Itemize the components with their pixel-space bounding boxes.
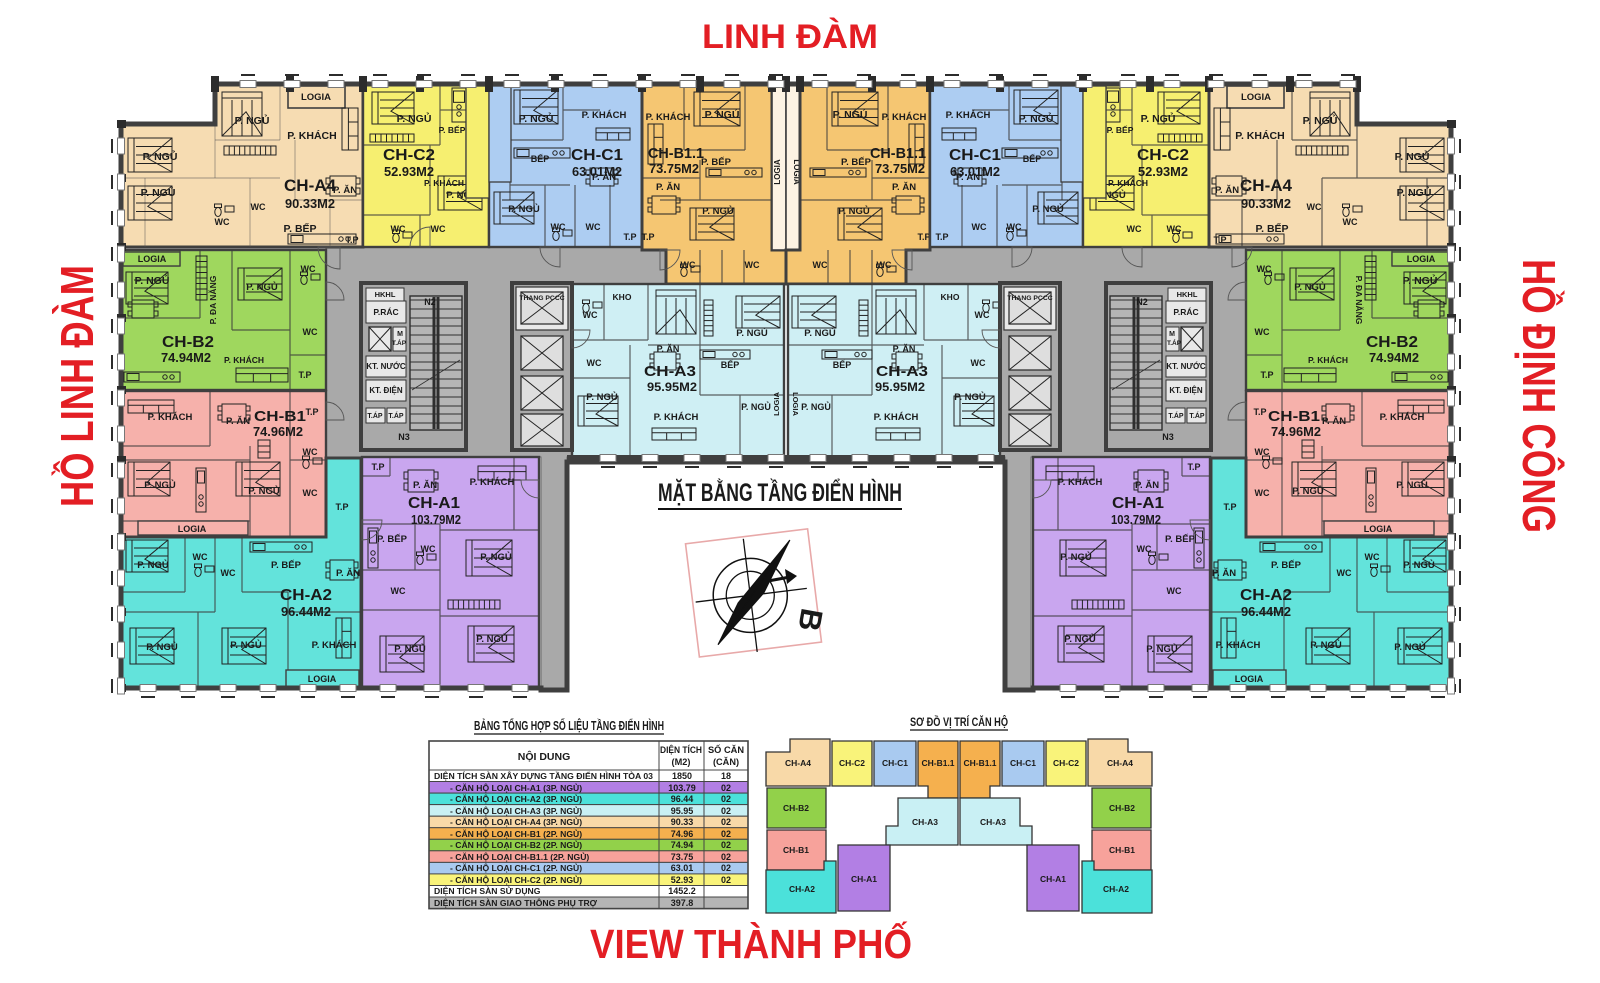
svg-text:P. KHÁCH: P. KHÁCH	[1108, 178, 1148, 188]
svg-text:CH-A1: CH-A1	[1040, 874, 1066, 884]
svg-text:CH-A1: CH-A1	[851, 874, 877, 884]
svg-text:T.P: T.P	[641, 232, 654, 242]
svg-text:74.94M2: 74.94M2	[161, 351, 211, 365]
svg-text:KHO: KHO	[941, 292, 960, 302]
svg-text:P. KHÁCH: P. KHÁCH	[1216, 640, 1261, 651]
svg-text:CH-A2: CH-A2	[789, 884, 815, 894]
svg-text:CH-A4: CH-A4	[785, 758, 811, 768]
svg-text:WC: WC	[1127, 224, 1142, 234]
svg-text:LOGIA: LOGIA	[301, 92, 331, 103]
svg-text:P. NGỦ: P. NGỦ	[1403, 559, 1435, 571]
svg-text:T.P: T.P	[371, 462, 384, 472]
svg-text:P. NGỦ: P. NGỦ	[1397, 186, 1432, 199]
svg-text:CH-C1: CH-C1	[571, 147, 623, 164]
svg-text:WC: WC	[1343, 217, 1358, 227]
svg-text:CH-A1: CH-A1	[408, 495, 460, 512]
svg-text:HKHL: HKHL	[375, 290, 396, 299]
svg-text:52.93M2: 52.93M2	[1138, 165, 1188, 179]
svg-text:WC: WC	[972, 222, 987, 232]
svg-text:CH-A4: CH-A4	[1240, 176, 1293, 195]
svg-text:WC: WC	[193, 552, 208, 562]
svg-text:T.ÁP: T.ÁP	[1168, 411, 1184, 420]
svg-text:52.93: 52.93	[671, 875, 694, 885]
svg-text:P. KHÁCH: P. KHÁCH	[1380, 412, 1425, 423]
svg-text:P. ĐA NĂNG: P. ĐA NĂNG	[1354, 276, 1364, 325]
svg-text:VIEW THÀNH PHỐ: VIEW THÀNH PHỐ	[590, 921, 912, 967]
svg-text:P. NGỦ: P. NGỦ	[480, 551, 512, 563]
svg-text:95.95: 95.95	[671, 806, 694, 816]
svg-text:WC: WC	[1167, 586, 1182, 596]
svg-text:P. ĂN: P. ĂN	[1212, 568, 1236, 579]
svg-text:CH-A4: CH-A4	[1107, 758, 1133, 768]
svg-text:KT. NƯỚC: KT. NƯỚC	[1166, 362, 1205, 371]
svg-text:P. BẾP: P. BẾP	[841, 157, 872, 168]
svg-text:CH-B2: CH-B2	[162, 334, 214, 351]
svg-text:T.ÁP: T.ÁP	[1189, 411, 1205, 420]
svg-text:103.79M2: 103.79M2	[411, 513, 461, 527]
svg-text:P. KHÁCH: P. KHÁCH	[224, 355, 264, 365]
svg-text:WC: WC	[1365, 552, 1380, 562]
svg-text:T.P: T.P	[335, 502, 348, 512]
svg-text:THANG PCCC: THANG PCCC	[1007, 295, 1052, 302]
svg-text:90.33: 90.33	[671, 817, 694, 827]
svg-text:74.96M2: 74.96M2	[1271, 425, 1321, 439]
svg-text:CH-C1: CH-C1	[882, 758, 908, 768]
svg-text:1452.2: 1452.2	[668, 886, 696, 896]
svg-text:LOGIA: LOGIA	[1235, 674, 1264, 684]
svg-text:74.94M2: 74.94M2	[1369, 351, 1419, 365]
svg-text:P. BẾP: P. BẾP	[283, 222, 316, 235]
svg-text:T.P: T.P	[1187, 462, 1200, 472]
svg-text:LOGIA: LOGIA	[138, 254, 167, 264]
svg-text:WC: WC	[1255, 488, 1270, 498]
svg-text:P. NGỦ: P. NGỦ	[741, 401, 771, 412]
svg-text:CH-B1: CH-B1	[254, 408, 306, 425]
svg-text:- CĂN HỘ LOẠI CH-A2 (3P. NGỦ): - CĂN HỘ LOẠI CH-A2 (3P. NGỦ)	[450, 793, 582, 804]
svg-text:P. KHÁCH: P. KHÁCH	[312, 640, 357, 651]
svg-text:DIỆN TÍCH SÀN SỬ DỤNG: DIỆN TÍCH SÀN SỬ DỤNG	[434, 885, 541, 896]
svg-text:P.RÁC: P.RÁC	[373, 307, 398, 317]
svg-text:KT. ĐIỆN: KT. ĐIỆN	[1169, 386, 1203, 395]
svg-text:P. NGỦ: P. NGỦ	[246, 281, 278, 293]
svg-text:NỘI DUNG: NỘI DUNG	[518, 750, 571, 763]
svg-text:CH-C1: CH-C1	[1010, 758, 1036, 768]
svg-text:N3: N3	[1162, 432, 1174, 442]
svg-text:T.P: T.P	[917, 232, 930, 242]
svg-text:CH-B1: CH-B1	[1109, 845, 1135, 855]
svg-text:- CĂN HỘ LOẠI CH-B2 (2P. NGỦ): - CĂN HỘ LOẠI CH-B2 (2P. NGỦ)	[450, 839, 582, 850]
svg-text:WC: WC	[877, 260, 892, 270]
svg-text:P. KHÁCH: P. KHÁCH	[582, 110, 627, 121]
svg-text:WC: WC	[586, 222, 601, 232]
svg-text:P. KHÁCH: P. KHÁCH	[1308, 355, 1348, 365]
svg-text:WC: WC	[251, 202, 266, 212]
svg-text:02: 02	[721, 783, 731, 793]
svg-text:P. NGỦ: P. NGỦ	[954, 391, 986, 403]
svg-text:P. BẾP: P. BẾP	[1107, 125, 1134, 135]
svg-text:LINH ĐÀM: LINH ĐÀM	[702, 18, 878, 56]
svg-text:M: M	[397, 331, 403, 338]
svg-text:P. NGỦ: P. NGỦ	[736, 327, 768, 339]
svg-text:KHO: KHO	[613, 292, 632, 302]
svg-text:P. ĂN: P. ĂN	[656, 182, 680, 193]
svg-text:P. NGỦ: P. NGỦ	[705, 108, 740, 121]
svg-text:KT. NƯỚC: KT. NƯỚC	[366, 362, 405, 371]
svg-text:CH-C2: CH-C2	[1137, 147, 1189, 164]
svg-text:95.95M2: 95.95M2	[647, 380, 697, 394]
svg-text:P. KHÁCH: P. KHÁCH	[654, 412, 699, 423]
svg-text:LOGIA: LOGIA	[1407, 254, 1436, 264]
svg-text:P.RÁC: P.RÁC	[1173, 307, 1198, 317]
svg-text:CH-C2: CH-C2	[1053, 758, 1079, 768]
svg-text:T.P: T.P	[1260, 370, 1273, 380]
svg-text:P. ĂN: P. ĂN	[1215, 185, 1239, 196]
svg-text:HỒ ĐỊNH CÔNG: HỒ ĐỊNH CÔNG	[1513, 259, 1565, 533]
svg-text:P. NGỦ: P. NGỦ	[702, 205, 734, 217]
svg-text:CH-B1.1: CH-B1.1	[648, 145, 704, 162]
svg-text:LOGIA: LOGIA	[773, 159, 782, 185]
svg-text:103.79M2: 103.79M2	[1111, 513, 1161, 527]
svg-text:1850: 1850	[672, 771, 692, 781]
svg-text:WC: WC	[431, 224, 446, 234]
svg-text:DIỆN TÍCH SÀN GIAO THÔNG PHỤ T: DIỆN TÍCH SÀN GIAO THÔNG PHỤ TRỢ	[434, 897, 598, 908]
svg-text:(M2): (M2)	[672, 757, 691, 767]
svg-text:P. BẾP: P. BẾP	[1271, 560, 1302, 571]
svg-text:CH-B2: CH-B2	[1109, 803, 1135, 813]
svg-text:CH-B1: CH-B1	[1268, 408, 1320, 425]
svg-text:CH-C2: CH-C2	[383, 147, 435, 164]
svg-text:- CĂN HỘ LOẠI CH-A4 (3P. NGỦ): - CĂN HỘ LOẠI CH-A4 (3P. NGỦ)	[450, 816, 582, 827]
svg-text:CH-B1.1: CH-B1.1	[870, 145, 926, 162]
svg-text:P. NGỦ: P. NGỦ	[838, 205, 870, 217]
svg-text:02: 02	[721, 840, 731, 850]
svg-text:BẢNG TỔNG HỢP SỐ LIỆU TẦNG ĐIỂ: BẢNG TỔNG HỢP SỐ LIỆU TẦNG ĐIỂN HÌNH	[474, 718, 664, 733]
svg-text:P. NGỦ: P. NGỦ	[230, 639, 262, 651]
svg-text:02: 02	[721, 875, 731, 885]
svg-text:P. KHÁCH: P. KHÁCH	[1058, 477, 1103, 488]
svg-text:63.01M2: 63.01M2	[572, 165, 622, 179]
svg-text:CH-A3: CH-A3	[980, 817, 1006, 827]
svg-text:WC: WC	[971, 358, 986, 368]
svg-text:LOGIA: LOGIA	[308, 674, 337, 684]
svg-text:T.P: T.P	[298, 370, 311, 380]
svg-text:P. KHÁCH: P. KHÁCH	[1235, 129, 1284, 142]
svg-text:WC: WC	[813, 260, 828, 270]
svg-text:P. KHÁCH: P. KHÁCH	[148, 412, 193, 423]
svg-text:74.96: 74.96	[671, 829, 694, 839]
svg-text:T.P: T.P	[1223, 502, 1236, 512]
svg-text:CH-B2: CH-B2	[783, 803, 809, 813]
svg-text:P. KHÁCH: P. KHÁCH	[287, 129, 336, 142]
svg-text:P. KHÁCH: P. KHÁCH	[470, 477, 515, 488]
svg-text:T.P: T.P	[935, 232, 948, 242]
svg-text:THANG PCCC: THANG PCCC	[519, 295, 564, 302]
svg-text:T.ÁP: T.ÁP	[367, 411, 383, 420]
svg-text:02: 02	[721, 829, 731, 839]
svg-text:P. ĐA NĂNG: P. ĐA NĂNG	[208, 275, 218, 324]
svg-text:WC: WC	[303, 488, 318, 498]
svg-text:02: 02	[721, 806, 731, 816]
svg-text:96.44M2: 96.44M2	[1241, 605, 1291, 619]
svg-text:N2: N2	[1136, 297, 1148, 307]
svg-text:BẾP: BẾP	[721, 360, 740, 370]
svg-text:CH-A3: CH-A3	[644, 363, 696, 380]
svg-text:96.44M2: 96.44M2	[281, 605, 331, 619]
svg-text:- CĂN HỘ LOẠI CH-C2 (2P. NGỦ): - CĂN HỘ LOẠI CH-C2 (2P. NGỦ)	[450, 874, 582, 885]
svg-text:KT. ĐIỆN: KT. ĐIỆN	[369, 386, 403, 395]
svg-text:P. NGỦ: P. NGỦ	[804, 327, 836, 339]
svg-text:CH-A1: CH-A1	[1112, 495, 1164, 512]
svg-text:P. ĂN: P. ĂN	[892, 182, 916, 193]
svg-text:- CĂN HỘ LOẠI CH-C1 (2P. NGỦ): - CĂN HỘ LOẠI CH-C1 (2P. NGỦ)	[450, 862, 582, 873]
svg-text:HKHL: HKHL	[1177, 290, 1198, 299]
svg-text:P. BẾP: P. BẾP	[701, 157, 732, 168]
svg-text:CH-A2: CH-A2	[280, 587, 332, 604]
svg-text:WC: WC	[221, 568, 236, 578]
svg-text:WC: WC	[303, 327, 318, 337]
svg-text:LOGIA: LOGIA	[772, 392, 781, 416]
svg-text:P. BẾP: P. BẾP	[1165, 534, 1196, 545]
svg-text:T.ÁP: T.ÁP	[1167, 338, 1182, 347]
svg-text:CH-A3: CH-A3	[912, 817, 938, 827]
svg-text:WC: WC	[745, 260, 760, 270]
svg-text:02: 02	[721, 852, 731, 862]
svg-text:63.01: 63.01	[671, 863, 694, 873]
svg-text:P. KHÁCH: P. KHÁCH	[882, 112, 927, 123]
svg-text:DIỆN TÍCH SÀN XÂY DỰNG TẦNG ĐI: DIỆN TÍCH SÀN XÂY DỰNG TẦNG ĐIỂN HÌNH TÒ…	[434, 770, 653, 781]
svg-text:WC: WC	[1307, 202, 1322, 212]
svg-text:N2: N2	[424, 297, 436, 307]
svg-text:P. BẾP: P. BẾP	[271, 560, 302, 571]
svg-text:BẾP: BẾP	[531, 154, 550, 164]
svg-text:P. NGỦ: P. NGỦ	[508, 203, 540, 215]
svg-text:- CĂN HỘ LOẠI CH-A1 (3P. NGỦ): - CĂN HỘ LOẠI CH-A1 (3P. NGỦ)	[450, 782, 582, 793]
svg-text:WC: WC	[583, 310, 598, 320]
svg-text:73.75: 73.75	[671, 852, 694, 862]
svg-text:T.P: T.P	[1253, 407, 1266, 417]
svg-text:P. ĂN: P. ĂN	[333, 185, 357, 196]
svg-text:74.96M2: 74.96M2	[253, 425, 303, 439]
svg-text:P. NGỦ: P. NGỦ	[586, 391, 618, 403]
svg-text:18: 18	[721, 771, 731, 781]
svg-text:T.ÁP: T.ÁP	[392, 338, 407, 347]
svg-text:- CĂN HỘ LOẠI CH-B1.1 (2P. NGỦ: - CĂN HỘ LOẠI CH-B1.1 (2P. NGỦ)	[450, 851, 589, 862]
svg-text:WC: WC	[681, 260, 696, 270]
svg-text:P. NGỦ: P. NGỦ	[137, 559, 169, 571]
svg-text:WC: WC	[1337, 568, 1352, 578]
svg-text:T.P: T.P	[305, 407, 318, 417]
svg-text:BẾP: BẾP	[1023, 154, 1042, 164]
svg-text:WC: WC	[391, 586, 406, 596]
svg-text:P. NGỦ: P. NGỦ	[146, 641, 178, 653]
svg-text:P. BẾP: P. BẾP	[439, 125, 466, 135]
svg-text:CH-A4: CH-A4	[284, 176, 337, 195]
svg-text:BẾP: BẾP	[833, 360, 852, 370]
svg-text:74.94: 74.94	[671, 840, 694, 850]
svg-text:- CĂN HỘ LOẠI CH-B1 (2P. NGỦ): - CĂN HỘ LOẠI CH-B1 (2P. NGỦ)	[450, 828, 582, 839]
svg-text:P. KHÁCH: P. KHÁCH	[874, 412, 919, 423]
svg-text:103.79: 103.79	[668, 783, 696, 793]
svg-text:WC: WC	[587, 358, 602, 368]
svg-text:CH-B2: CH-B2	[1366, 334, 1418, 351]
svg-text:96.44: 96.44	[671, 794, 694, 804]
svg-text:LOGIA: LOGIA	[1364, 524, 1393, 534]
svg-text:95.95M2: 95.95M2	[875, 380, 925, 394]
svg-text:P. NGỦ: P. NGỦ	[1060, 551, 1092, 563]
svg-text:LOGIA: LOGIA	[178, 524, 207, 534]
svg-text:MẶT BẰNG TẦNG ĐIỂN HÌNH: MẶT BẰNG TẦNG ĐIỂN HÌNH	[658, 478, 902, 507]
svg-text:P. BẾP: P. BẾP	[1255, 222, 1288, 235]
svg-text:P. KHÁCH: P. KHÁCH	[646, 112, 691, 123]
svg-text:CH-B1.1: CH-B1.1	[963, 758, 996, 768]
svg-text:P. KHÁCH: P. KHÁCH	[946, 110, 991, 121]
svg-text:CH-B1.1: CH-B1.1	[921, 758, 954, 768]
svg-text:02: 02	[721, 794, 731, 804]
svg-text:CH-A3: CH-A3	[876, 363, 928, 380]
svg-text:CH-C1: CH-C1	[949, 147, 1001, 164]
svg-text:T.P: T.P	[623, 232, 636, 242]
svg-text:WC: WC	[215, 217, 230, 227]
svg-text:CH-B1: CH-B1	[783, 845, 809, 855]
svg-text:DIỆN TÍCH: DIỆN TÍCH	[660, 744, 702, 755]
svg-text:90.33M2: 90.33M2	[285, 196, 335, 211]
svg-text:WC: WC	[1255, 327, 1270, 337]
svg-text:90.33M2: 90.33M2	[1241, 196, 1291, 211]
svg-text:SƠ ĐỒ VỊ TRÍ CĂN HỘ: SƠ ĐỒ VỊ TRÍ CĂN HỘ	[910, 716, 1008, 729]
svg-text:SỐ CĂN: SỐ CĂN	[708, 744, 744, 755]
svg-text:CH-A2: CH-A2	[1240, 587, 1292, 604]
svg-text:397.8: 397.8	[671, 898, 694, 908]
svg-text:02: 02	[721, 863, 731, 873]
svg-text:P. NGỦ: P. NGỦ	[801, 401, 831, 412]
svg-text:- CĂN HỘ LOẠI CH-A3 (3P. NGỦ): - CĂN HỘ LOẠI CH-A3 (3P. NGỦ)	[450, 805, 582, 816]
svg-text:52.93M2: 52.93M2	[384, 165, 434, 179]
svg-text:T.ÁP: T.ÁP	[388, 411, 404, 420]
svg-text:LOGIA: LOGIA	[1241, 92, 1271, 103]
svg-text:P. BẾP: P. BẾP	[377, 534, 408, 545]
svg-text:CH-C2: CH-C2	[839, 758, 865, 768]
svg-text:P. ĂN: P. ĂN	[1135, 480, 1159, 491]
svg-text:HỒ LINH ĐÀM: HỒ LINH ĐÀM	[51, 265, 103, 507]
svg-text:CH-A2: CH-A2	[1103, 884, 1129, 894]
svg-text:N3: N3	[398, 432, 410, 442]
svg-text:(CĂN): (CĂN)	[713, 757, 739, 767]
svg-text:LOGIA: LOGIA	[791, 392, 800, 416]
svg-text:M: M	[1169, 331, 1175, 338]
svg-text:02: 02	[721, 817, 731, 827]
svg-text:P. ĂN: P. ĂN	[336, 568, 360, 579]
